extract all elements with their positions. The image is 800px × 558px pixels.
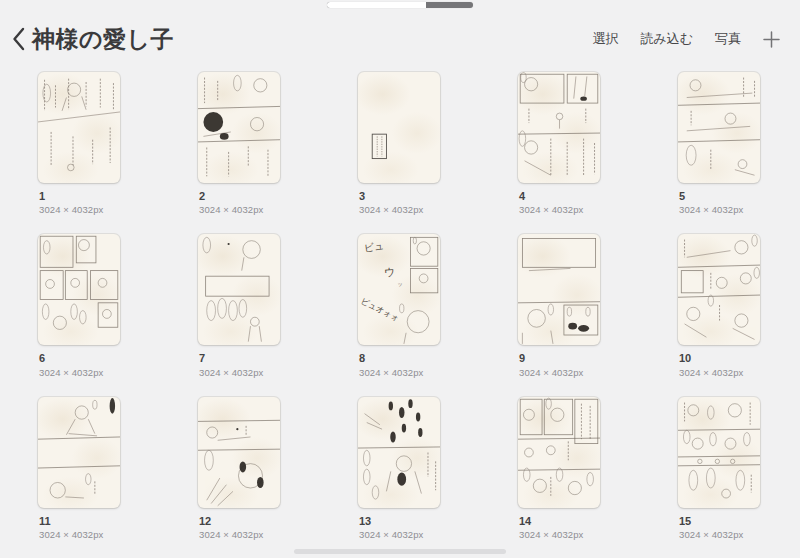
- grid-item: 2 3024 × 4032px: [198, 72, 280, 215]
- page-thumbnail[interactable]: [38, 397, 120, 508]
- thumbnail-caption: 7 3024 × 4032px: [198, 352, 280, 377]
- page-number-label: 1: [39, 190, 120, 202]
- page-title: 神様の愛し子: [32, 24, 174, 55]
- grid-item: 12 3024 × 4032px: [198, 397, 280, 540]
- page-thumbnail[interactable]: [198, 234, 280, 345]
- add-page-button[interactable]: [763, 31, 780, 48]
- page-dimensions-label: 3024 × 4032px: [39, 204, 120, 215]
- page-number-label: 7: [199, 352, 280, 364]
- page-thumbnail[interactable]: [198, 397, 280, 508]
- page-number-label: 13: [359, 515, 440, 527]
- thumbnail-caption: 1 3024 × 4032px: [38, 190, 120, 215]
- thumbnail-caption: 6 3024 × 4032px: [38, 352, 120, 377]
- page-thumbnail[interactable]: [38, 72, 120, 183]
- svg-text:ウ: ウ: [384, 266, 396, 279]
- page-number-label: 2: [199, 190, 280, 202]
- page-dimensions-label: 3024 × 4032px: [519, 529, 600, 540]
- photos-button[interactable]: 写真: [715, 30, 741, 48]
- page-number-label: 11: [39, 515, 120, 527]
- back-button[interactable]: [12, 27, 25, 51]
- page-number-label: 12: [199, 515, 280, 527]
- page-number-label: 9: [519, 352, 600, 364]
- page-thumbnail[interactable]: [38, 234, 120, 345]
- page-number-label: 6: [39, 352, 120, 364]
- grid-item: 1 3024 × 4032px: [38, 72, 120, 215]
- grid-item: 9 3024 × 4032px: [518, 234, 600, 377]
- page-dimensions-label: 3024 × 4032px: [199, 529, 280, 540]
- grid-item: 14 3024 × 4032px: [518, 397, 600, 540]
- grid-item: 13 3024 × 4032px: [358, 397, 440, 540]
- header: 神様の愛し子 選択 読み込む 写真: [0, 0, 800, 62]
- thumbnail-caption: 11 3024 × 4032px: [38, 515, 120, 540]
- select-button[interactable]: 選択: [592, 30, 618, 48]
- page-dimensions-label: 3024 × 4032px: [359, 367, 440, 378]
- page-number-label: 8: [359, 352, 440, 364]
- page-thumbnail[interactable]: [678, 397, 760, 508]
- page-number-label: 15: [679, 515, 760, 527]
- grid-item: 7 3024 × 4032px: [198, 234, 280, 377]
- thumbnail-caption: 14 3024 × 4032px: [518, 515, 600, 540]
- thumbnail-caption: 13 3024 × 4032px: [358, 515, 440, 540]
- page-number-label: 10: [679, 352, 760, 364]
- grid-item: 5 3024 × 4032px: [678, 72, 760, 215]
- page-dimensions-label: 3024 × 4032px: [39, 529, 120, 540]
- grid-item: 15 3024 × 4032px: [678, 397, 760, 540]
- page-dimensions-label: 3024 × 4032px: [199, 204, 280, 215]
- page-number-label: 14: [519, 515, 600, 527]
- page-dimensions-label: 3024 × 4032px: [39, 367, 120, 378]
- page-grid: 1 3024 × 4032px 2 3024 × 4032px 3 3024 ×…: [0, 72, 800, 540]
- thumbnail-caption: 15 3024 × 4032px: [678, 515, 760, 540]
- page-dimensions-label: 3024 × 4032px: [519, 204, 600, 215]
- grid-item: 11 3024 × 4032px: [38, 397, 120, 540]
- thumbnail-caption: 3 3024 × 4032px: [358, 190, 440, 215]
- thumbnail-caption: 5 3024 × 4032px: [678, 190, 760, 215]
- progress-bar-fill: [327, 2, 426, 8]
- progress-bar: [327, 2, 473, 8]
- page-dimensions-label: 3024 × 4032px: [679, 529, 760, 540]
- page-thumbnail[interactable]: [358, 397, 440, 508]
- page-dimensions-label: 3024 × 4032px: [359, 529, 440, 540]
- page-number-label: 4: [519, 190, 600, 202]
- page-number-label: 3: [359, 190, 440, 202]
- page-dimensions-label: 3024 × 4032px: [679, 204, 760, 215]
- chevron-left-icon: [12, 27, 25, 51]
- page-thumbnail[interactable]: [518, 72, 600, 183]
- page-thumbnail[interactable]: [678, 72, 760, 183]
- thumbnail-caption: 10 3024 × 4032px: [678, 352, 760, 377]
- grid-item: ビュウッビュオォォ 8 3024 × 4032px: [358, 234, 440, 377]
- svg-text:ビュオォォ: ビュオォォ: [359, 297, 401, 324]
- home-indicator[interactable]: [294, 549, 506, 554]
- page-thumbnail[interactable]: [358, 72, 440, 183]
- import-button[interactable]: 読み込む: [640, 30, 693, 48]
- thumbnail-caption: 2 3024 × 4032px: [198, 190, 280, 215]
- page-number-label: 5: [679, 190, 760, 202]
- thumbnail-caption: 4 3024 × 4032px: [518, 190, 600, 215]
- page-dimensions-label: 3024 × 4032px: [679, 367, 760, 378]
- page-thumbnail[interactable]: [198, 72, 280, 183]
- page-thumbnail[interactable]: ビュウッビュオォォ: [358, 234, 440, 345]
- header-actions: 選択 読み込む 写真: [592, 30, 780, 48]
- page-dimensions-label: 3024 × 4032px: [359, 204, 440, 215]
- grid-item: 4 3024 × 4032px: [518, 72, 600, 215]
- page-thumbnail[interactable]: [678, 234, 760, 345]
- grid-item: 10 3024 × 4032px: [678, 234, 760, 377]
- svg-text:ッ: ッ: [397, 282, 403, 288]
- thumbnail-caption: 9 3024 × 4032px: [518, 352, 600, 377]
- grid-item: 6 3024 × 4032px: [38, 234, 120, 377]
- svg-text:ビュ: ビュ: [363, 240, 384, 254]
- page-dimensions-label: 3024 × 4032px: [519, 367, 600, 378]
- page-thumbnail[interactable]: [518, 397, 600, 508]
- thumbnail-caption: 12 3024 × 4032px: [198, 515, 280, 540]
- page-dimensions-label: 3024 × 4032px: [199, 367, 280, 378]
- plus-icon: [763, 31, 780, 48]
- thumbnail-caption: 8 3024 × 4032px: [358, 352, 440, 377]
- grid-item: 3 3024 × 4032px: [358, 72, 440, 215]
- page-thumbnail[interactable]: [518, 234, 600, 345]
